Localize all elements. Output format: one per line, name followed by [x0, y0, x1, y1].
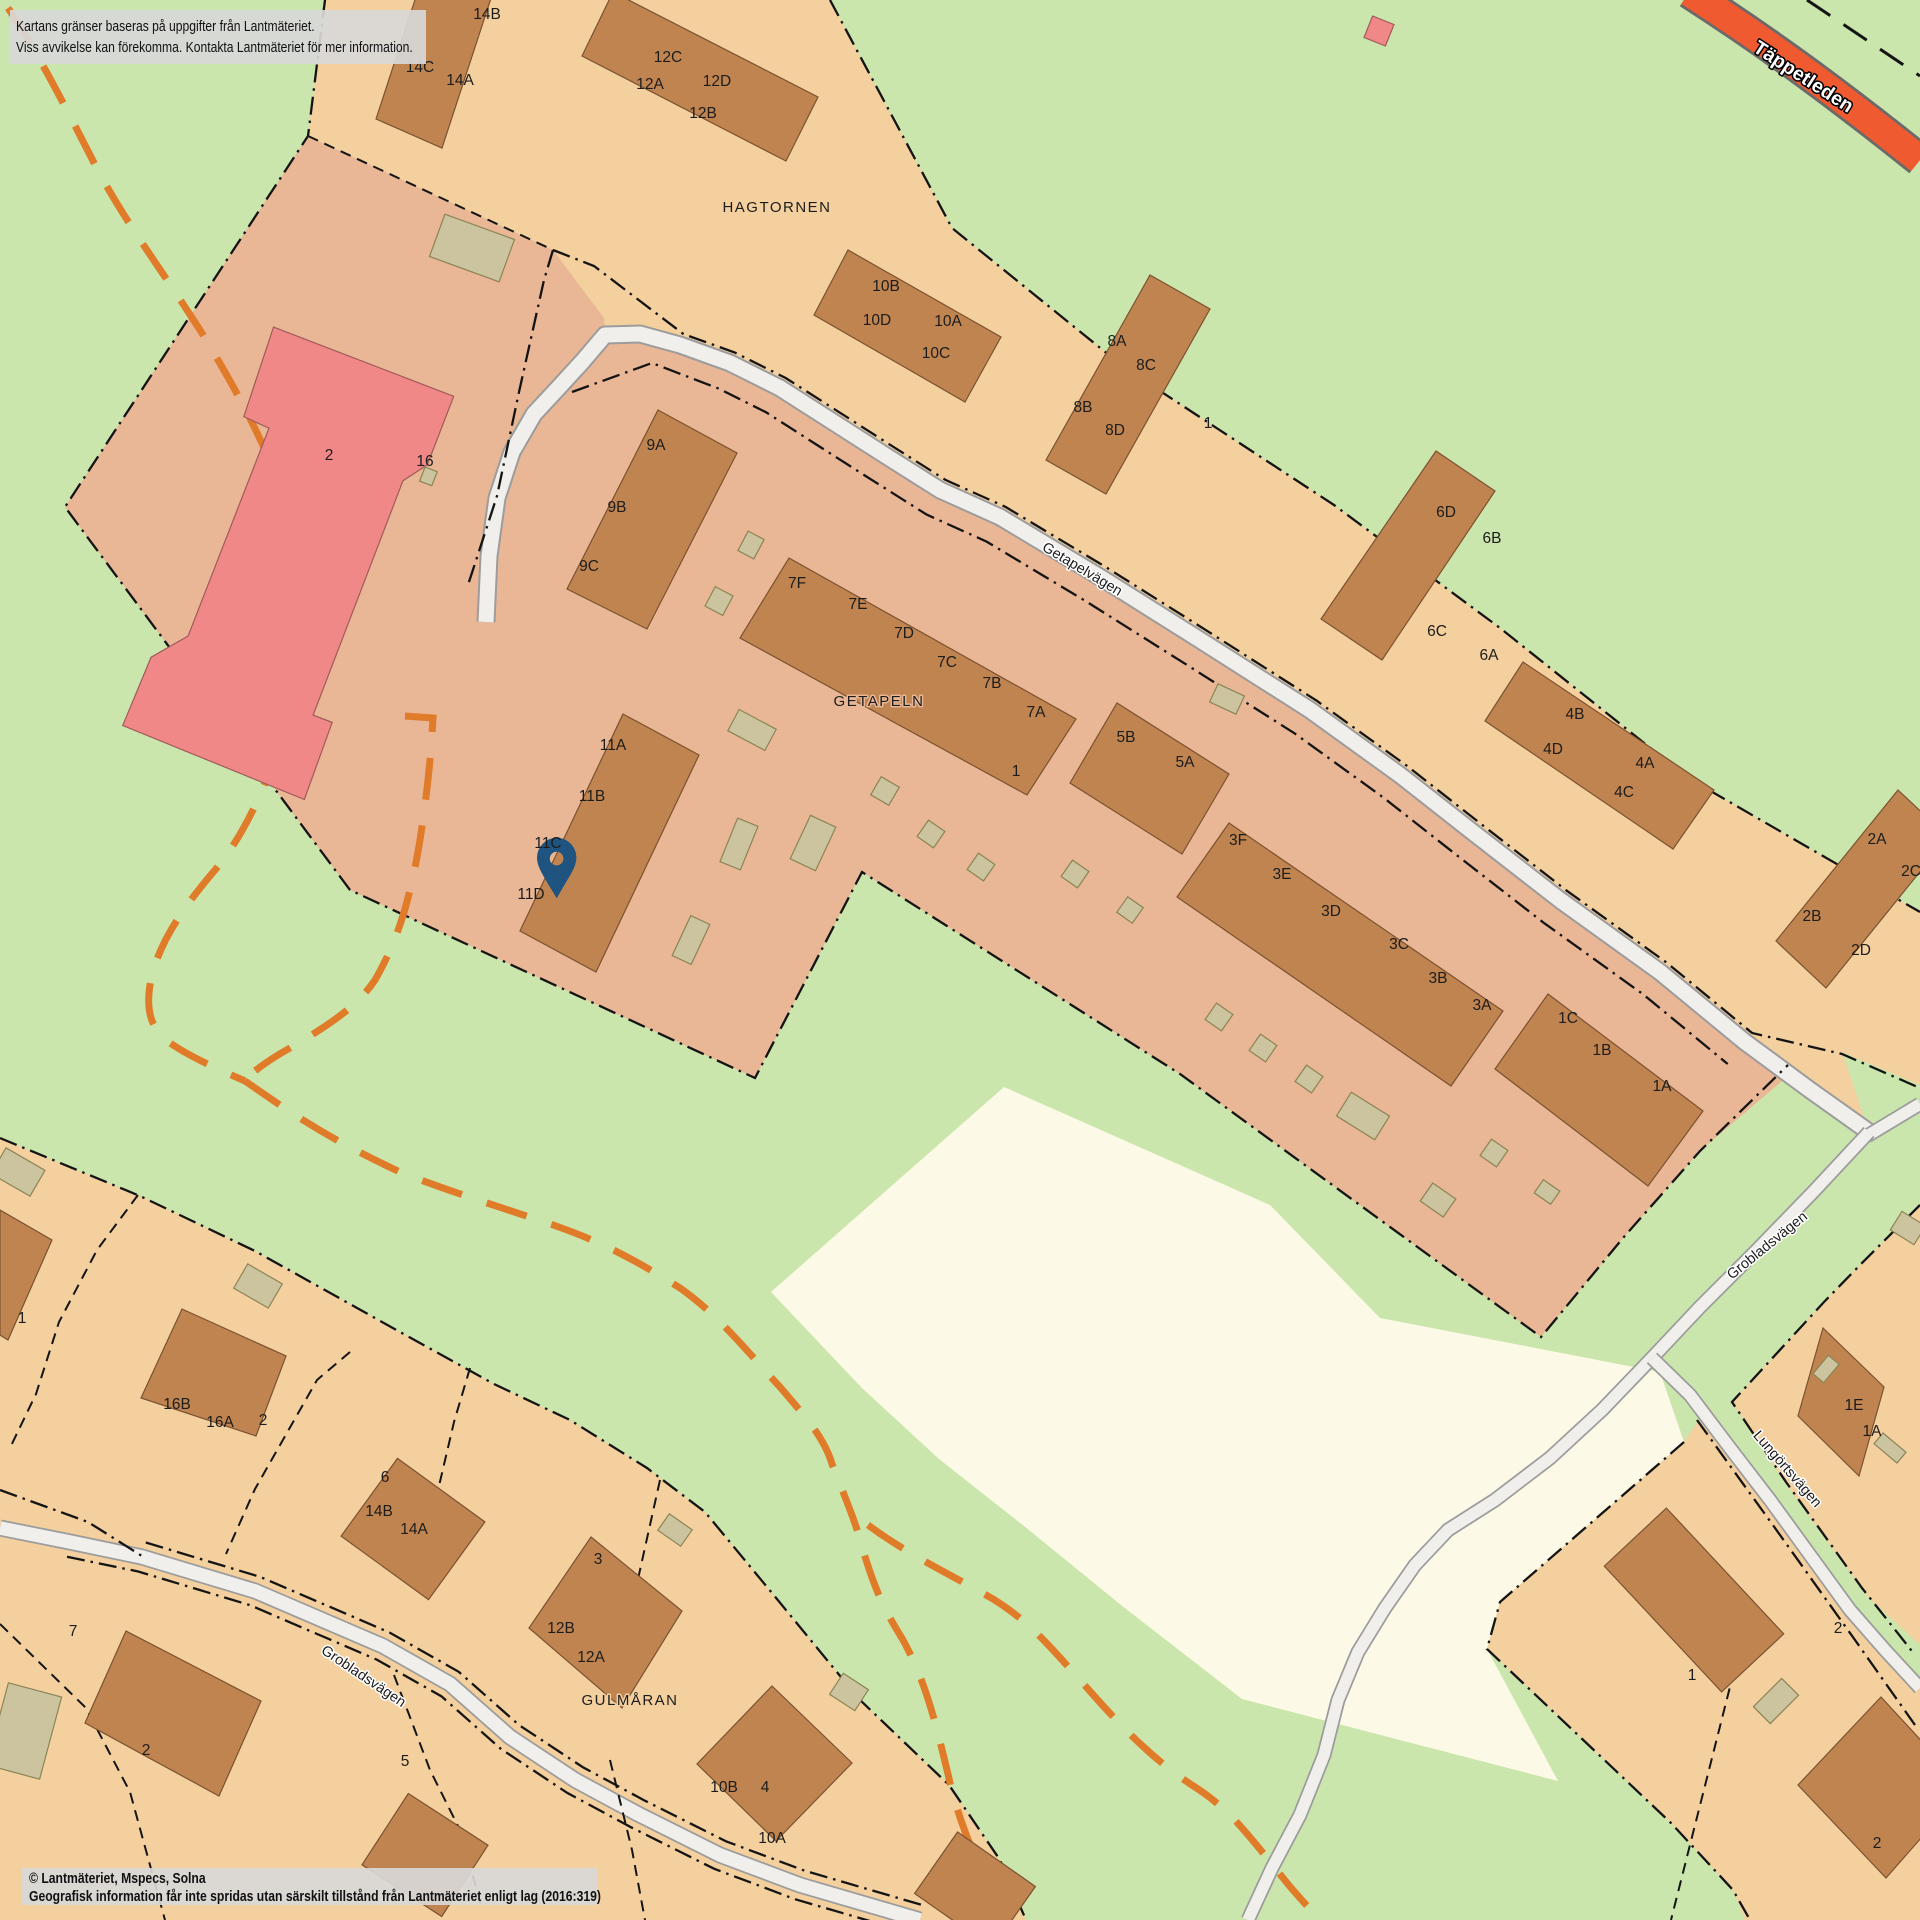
svg-text:10C: 10C	[922, 345, 950, 362]
svg-text:6B: 6B	[1483, 530, 1502, 547]
svg-text:4B: 4B	[1566, 706, 1585, 723]
svg-text:2C: 2C	[1901, 863, 1920, 880]
svg-text:12B: 12B	[689, 105, 717, 122]
svg-text:14A: 14A	[400, 1521, 428, 1538]
svg-text:2: 2	[259, 1412, 268, 1429]
svg-text:1A: 1A	[1653, 1078, 1673, 1095]
svg-text:3: 3	[594, 1551, 603, 1568]
svg-text:2: 2	[1834, 1620, 1843, 1637]
svg-text:14B: 14B	[473, 6, 501, 23]
svg-text:10A: 10A	[934, 313, 962, 330]
svg-text:11C: 11C	[534, 835, 561, 852]
svg-text:14B: 14B	[365, 1503, 393, 1520]
svg-text:1: 1	[18, 1310, 27, 1327]
svg-text:1E: 1E	[1845, 1397, 1864, 1414]
svg-text:1A: 1A	[1863, 1423, 1883, 1440]
svg-text:9B: 9B	[608, 499, 627, 516]
svg-text:12C: 12C	[654, 49, 682, 66]
svg-text:8B: 8B	[1074, 399, 1093, 416]
svg-text:3E: 3E	[1273, 866, 1292, 883]
svg-text:2: 2	[325, 447, 334, 464]
svg-text:8D: 8D	[1105, 422, 1125, 439]
svg-text:5A: 5A	[1176, 754, 1196, 771]
svg-text:1: 1	[1012, 763, 1021, 780]
svg-text:7C: 7C	[937, 654, 957, 671]
svg-text:GETAPELN: GETAPELN	[834, 693, 925, 710]
svg-text:7E: 7E	[849, 596, 868, 613]
svg-text:3C: 3C	[1389, 936, 1409, 953]
svg-text:8C: 8C	[1136, 357, 1156, 374]
svg-text:6D: 6D	[1436, 504, 1456, 521]
svg-text:9A: 9A	[647, 437, 667, 454]
svg-text:8A: 8A	[1108, 333, 1128, 350]
svg-text:11B: 11B	[579, 788, 605, 805]
svg-text:10D: 10D	[863, 312, 891, 329]
svg-text:7: 7	[69, 1623, 78, 1640]
svg-text:GULMÅRAN: GULMÅRAN	[581, 1692, 678, 1709]
svg-text:Viss avvikelse kan förekomma.: Viss avvikelse kan förekomma. Kontakta L…	[16, 39, 413, 55]
svg-text:4: 4	[761, 1779, 770, 1796]
svg-text:2D: 2D	[1851, 942, 1871, 959]
svg-text:3F: 3F	[1229, 832, 1247, 849]
svg-text:7A: 7A	[1027, 704, 1047, 721]
svg-text:12D: 12D	[703, 73, 731, 90]
svg-text:11D: 11D	[517, 886, 544, 903]
svg-text:4C: 4C	[1614, 784, 1634, 801]
svg-text:1: 1	[1688, 1667, 1697, 1684]
svg-text:2: 2	[142, 1742, 151, 1759]
svg-text:1B: 1B	[1593, 1042, 1612, 1059]
svg-text:12A: 12A	[577, 1649, 605, 1666]
svg-text:5: 5	[401, 1753, 410, 1770]
svg-text:2: 2	[1873, 1835, 1882, 1852]
svg-text:4A: 4A	[1636, 755, 1656, 772]
svg-text:6C: 6C	[1427, 623, 1447, 640]
svg-text:16B: 16B	[163, 1396, 191, 1413]
svg-text:7F: 7F	[788, 575, 806, 592]
svg-text:Kartans gränser baseras på upp: Kartans gränser baseras på uppgifter frå…	[16, 18, 315, 34]
svg-text:7D: 7D	[894, 625, 914, 642]
svg-text:12A: 12A	[636, 76, 664, 93]
svg-text:6A: 6A	[1480, 647, 1500, 664]
svg-text:16: 16	[416, 453, 433, 470]
svg-text:10B: 10B	[710, 1779, 738, 1796]
svg-text:9C: 9C	[579, 558, 599, 575]
svg-text:12B: 12B	[547, 1620, 575, 1637]
svg-text:4D: 4D	[1543, 741, 1563, 758]
svg-text:10A: 10A	[758, 1830, 786, 1847]
svg-text:3A: 3A	[1473, 997, 1493, 1014]
svg-text:3B: 3B	[1429, 970, 1448, 987]
svg-text:10B: 10B	[872, 278, 900, 295]
svg-text:5B: 5B	[1117, 729, 1136, 746]
svg-text:1C: 1C	[1558, 1010, 1578, 1027]
svg-text:2A: 2A	[1868, 831, 1888, 848]
svg-text:Geografisk information får int: Geografisk information får inte spridas …	[29, 1888, 601, 1904]
svg-text:© Lantmäteriet, Mspecs, Solna: © Lantmäteriet, Mspecs, Solna	[29, 1870, 206, 1886]
svg-text:7B: 7B	[983, 675, 1002, 692]
svg-text:3D: 3D	[1321, 903, 1341, 920]
svg-text:HAGTORNEN: HAGTORNEN	[722, 199, 831, 216]
svg-text:11A: 11A	[600, 737, 627, 754]
svg-text:6: 6	[381, 1469, 390, 1486]
svg-text:2B: 2B	[1803, 908, 1822, 925]
svg-text:14A: 14A	[446, 72, 474, 89]
svg-text:16A: 16A	[206, 1414, 234, 1431]
svg-text:1: 1	[1204, 415, 1213, 432]
